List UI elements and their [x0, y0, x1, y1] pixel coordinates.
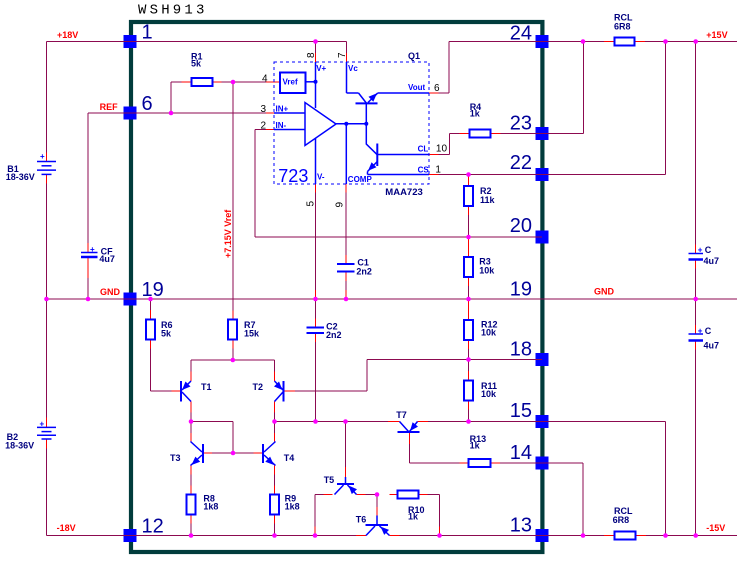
svg-text:13: 13	[510, 515, 532, 537]
svg-text:2: 2	[260, 121, 266, 132]
svg-text:CS: CS	[418, 166, 430, 175]
svg-text:-15V: -15V	[706, 523, 725, 533]
svg-text:T5: T5	[324, 475, 335, 485]
svg-text:22: 22	[510, 152, 532, 174]
svg-text:T6: T6	[356, 515, 367, 525]
svg-text:18-36V: 18-36V	[5, 441, 34, 451]
svg-text:24: 24	[510, 23, 532, 45]
svg-text:1k: 1k	[408, 512, 419, 522]
svg-text:IN-: IN-	[276, 121, 287, 130]
svg-text:+18V: +18V	[57, 30, 78, 40]
svg-text:2n2: 2n2	[356, 267, 372, 277]
svg-text:10k: 10k	[481, 389, 497, 399]
svg-text:GND: GND	[594, 287, 615, 297]
svg-text:6: 6	[142, 93, 153, 115]
svg-text:V-: V-	[317, 173, 325, 182]
svg-text:IN+: IN+	[276, 105, 289, 114]
svg-text:9: 9	[335, 202, 346, 208]
svg-text:GND: GND	[100, 287, 121, 297]
svg-text:15: 15	[510, 400, 532, 422]
svg-text:-18V: -18V	[57, 523, 76, 533]
svg-text:7: 7	[337, 52, 348, 58]
svg-text:Vc: Vc	[348, 64, 358, 73]
svg-text:723: 723	[278, 166, 308, 186]
svg-text:6: 6	[434, 83, 440, 94]
svg-text:12: 12	[142, 516, 164, 538]
svg-text:1k: 1k	[470, 441, 481, 451]
svg-text:11k: 11k	[480, 195, 496, 205]
svg-text:+: +	[40, 152, 45, 161]
svg-text:+7.15V Vref: +7.15V Vref	[223, 209, 233, 258]
svg-text:COMP: COMP	[348, 175, 373, 184]
svg-text:4: 4	[262, 74, 268, 85]
svg-text:3: 3	[260, 104, 266, 115]
svg-text:10: 10	[436, 144, 448, 155]
svg-text:5k: 5k	[161, 329, 172, 339]
svg-text:6R8: 6R8	[613, 515, 630, 525]
svg-text:5: 5	[306, 201, 317, 207]
svg-text:1: 1	[435, 165, 441, 176]
svg-text:T3: T3	[170, 453, 181, 463]
svg-text:15k: 15k	[244, 329, 260, 339]
svg-text:1: 1	[142, 22, 153, 44]
svg-text:18-36V: 18-36V	[6, 172, 35, 182]
svg-text:+: +	[698, 246, 703, 255]
svg-text:5k: 5k	[191, 59, 202, 69]
svg-text:14: 14	[510, 442, 532, 464]
svg-text:1k8: 1k8	[203, 502, 218, 512]
svg-text:C: C	[705, 245, 712, 255]
svg-text:8: 8	[306, 52, 317, 58]
svg-text:T2: T2	[253, 382, 264, 392]
svg-text:+: +	[40, 420, 45, 429]
svg-text:Vref: Vref	[283, 78, 298, 87]
svg-text:+: +	[90, 245, 95, 254]
svg-text:4u7: 4u7	[704, 341, 720, 351]
svg-text:V+: V+	[316, 64, 326, 73]
svg-text:REF: REF	[100, 102, 119, 112]
svg-text:20: 20	[510, 215, 532, 237]
svg-text:Vout: Vout	[408, 83, 426, 92]
svg-text:10k: 10k	[481, 328, 497, 338]
svg-text:Q1: Q1	[408, 51, 420, 61]
svg-text:CL: CL	[418, 145, 429, 154]
svg-text:10k: 10k	[479, 266, 495, 276]
svg-text:19: 19	[510, 279, 532, 301]
svg-text:C: C	[705, 326, 712, 336]
svg-text:1k: 1k	[470, 109, 481, 119]
svg-text:6R8: 6R8	[614, 22, 631, 32]
svg-text:1k8: 1k8	[285, 502, 300, 512]
svg-text:T1: T1	[201, 382, 212, 392]
svg-text:+: +	[698, 327, 703, 336]
svg-text:WSH913: WSH913	[138, 3, 208, 19]
svg-text:23: 23	[510, 113, 532, 135]
svg-text:4u7: 4u7	[704, 256, 720, 266]
svg-text:T4: T4	[284, 453, 295, 463]
svg-text:19: 19	[142, 279, 164, 301]
svg-text:T7: T7	[396, 410, 407, 420]
svg-text:+15V: +15V	[706, 30, 727, 40]
svg-text:2n2: 2n2	[326, 330, 342, 340]
svg-text:4u7: 4u7	[99, 254, 115, 264]
svg-text:MAA723: MAA723	[385, 187, 423, 198]
svg-text:18: 18	[510, 339, 532, 361]
